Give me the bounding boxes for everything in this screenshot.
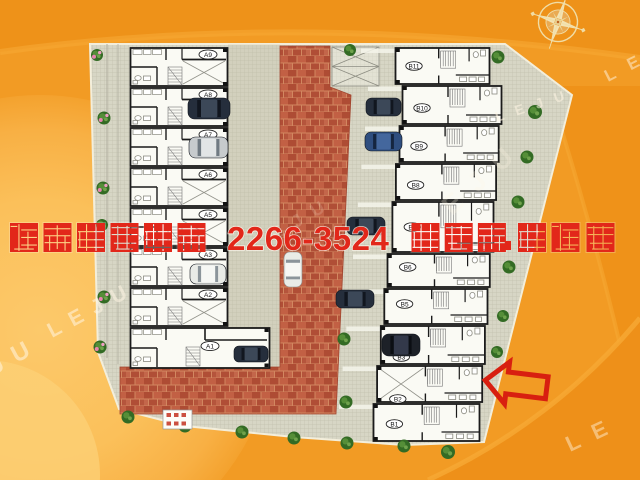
svg-text:B10: B10 — [416, 105, 428, 112]
svg-text:B2: B2 — [394, 396, 402, 403]
svg-text:B9: B9 — [415, 143, 423, 150]
svg-text:A9: A9 — [204, 52, 212, 59]
svg-text:A1: A1 — [206, 343, 214, 350]
svg-text:B8: B8 — [412, 182, 420, 189]
svg-text:B6: B6 — [404, 264, 412, 271]
svg-text:2266-3524: 2266-3524 — [227, 220, 389, 257]
svg-text:B1: B1 — [390, 421, 398, 428]
svg-text:A6: A6 — [204, 172, 212, 179]
svg-text:B5: B5 — [401, 301, 409, 308]
svg-text:B11: B11 — [408, 63, 419, 70]
svg-text:A5: A5 — [204, 212, 212, 219]
svg-text:A2: A2 — [204, 292, 212, 299]
